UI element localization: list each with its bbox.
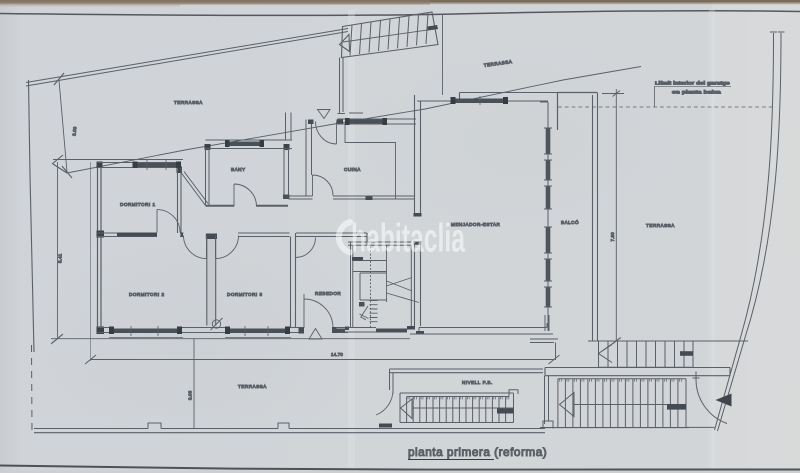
svg-text:3.00: 3.00 <box>72 126 78 136</box>
svg-text:Llímit interior del garatge: Llímit interior del garatge <box>655 81 730 86</box>
svg-text:CUINA: CUINA <box>344 167 361 172</box>
svg-text:en planta baixa: en planta baixa <box>672 90 722 95</box>
svg-text:TERRASSA: TERRASSA <box>646 223 675 228</box>
svg-text:BALCÓ: BALCÓ <box>561 219 579 225</box>
svg-text:TERRASSA: TERRASSA <box>174 100 203 105</box>
svg-text:7.60: 7.60 <box>610 232 615 242</box>
svg-text:DORMITORI 1: DORMITORI 1 <box>120 202 156 207</box>
svg-text:planta primera (reforma): planta primera (reforma) <box>408 445 547 459</box>
svg-text:TERRASSA: TERRASSA <box>238 384 267 389</box>
svg-text:5.41: 5.41 <box>58 253 63 263</box>
svg-text:BANY: BANY <box>231 167 246 172</box>
svg-text:3.08: 3.08 <box>188 390 193 400</box>
svg-text:REBEDOR: REBEDOR <box>315 291 341 296</box>
svg-text:DORMITORI 3: DORMITORI 3 <box>227 292 263 297</box>
svg-text:NIVELL P.B.: NIVELL P.B. <box>462 380 493 385</box>
svg-text:habitaclia: habitaclia <box>351 217 466 261</box>
svg-text:DORMITORI 2: DORMITORI 2 <box>129 292 165 297</box>
svg-text:14.70: 14.70 <box>331 352 343 357</box>
